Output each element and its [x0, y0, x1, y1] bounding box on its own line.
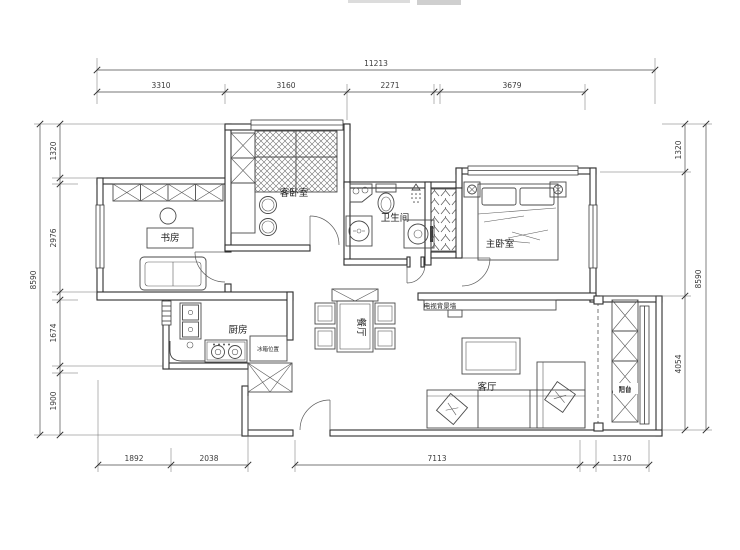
room-label-study: 书房: [160, 232, 179, 244]
dim-right-seg-1: 1320: [674, 140, 683, 159]
dim-left-overall: 8590: [29, 270, 38, 289]
annotation-fridge: 冰箱位置: [257, 345, 280, 353]
dim-bottom-seg-4: 1370: [612, 454, 631, 463]
hall-cabinet: [332, 289, 378, 301]
dim-top-overall: 11213: [364, 59, 388, 68]
dim-left-seg-2: 2976: [49, 228, 58, 247]
coffee-table: [462, 338, 520, 374]
dim-bottom-seg-3: 7113: [427, 454, 446, 463]
annotation-tv-wall: 电视背景墙: [424, 301, 457, 310]
dim-right-seg-2: 4054: [674, 354, 683, 373]
dimensions-left: 8590 1320 2976 1674 1900: [29, 121, 242, 438]
dining-chair: [315, 303, 395, 349]
room-label-dining: 餐厅: [355, 317, 367, 337]
dim-left-seg-4: 1900: [49, 391, 58, 410]
living-room: [427, 338, 585, 428]
dimensions-bottom: 1892 2038 7113 1370: [95, 380, 652, 472]
master-bedroom: [464, 182, 566, 260]
guest-bedroom: [231, 131, 337, 236]
clipped-title-fragment: [348, 0, 461, 5]
dim-top-seg-4: 3679: [502, 81, 521, 90]
hallway-closet: [431, 189, 456, 251]
study-sofa: [140, 257, 206, 290]
shaft: [248, 363, 292, 392]
room-label-kitchen: 厨房: [228, 324, 247, 336]
room-label-living: 客厅: [477, 381, 497, 393]
dim-left-seg-3: 1674: [49, 323, 58, 342]
dim-top-seg-1: 3310: [151, 81, 170, 90]
dimensions-top: 11213 3310 3160 2271 3679: [94, 58, 658, 120]
dim-top-seg-3: 2271: [380, 81, 399, 90]
room-label-master-bedroom: 主卧室: [486, 238, 515, 250]
floor-plan-canvas: 书房 客卧室 卫生间 主卧室 厨房 餐厅 客厅 阳台 电视背景墙 冰箱位置 11…: [0, 0, 740, 550]
dim-right-overall: 8590: [694, 269, 703, 288]
room-label-guest-bedroom: 客卧室: [280, 187, 309, 199]
room-label-bathroom: 卫生间: [381, 212, 410, 224]
balcony-cabinet: [612, 300, 638, 422]
kitchen-sink: [170, 303, 205, 361]
guest-bed: [255, 131, 337, 192]
dim-left-seg-1: 1320: [49, 141, 58, 160]
dining-room: [315, 289, 395, 352]
stove: [205, 340, 247, 362]
room-label-balcony: 阳台: [619, 385, 632, 394]
windows: [96, 120, 649, 424]
dim-bottom-seg-2: 2038: [199, 454, 218, 463]
dim-bottom-seg-1: 1892: [124, 454, 143, 463]
sofa: [427, 362, 585, 428]
sofa-pillow: [437, 394, 468, 425]
balcony: [594, 296, 638, 431]
dining-table: [337, 301, 373, 352]
floor-plan-sheet: 书房 客卧室 卫生间 主卧室 厨房 餐厅 客厅 阳台 电视背景墙 冰箱位置 11…: [0, 0, 740, 550]
study-chair: [160, 208, 176, 224]
sofa-pillow: [545, 382, 576, 413]
dim-top-seg-2: 3160: [276, 81, 295, 90]
